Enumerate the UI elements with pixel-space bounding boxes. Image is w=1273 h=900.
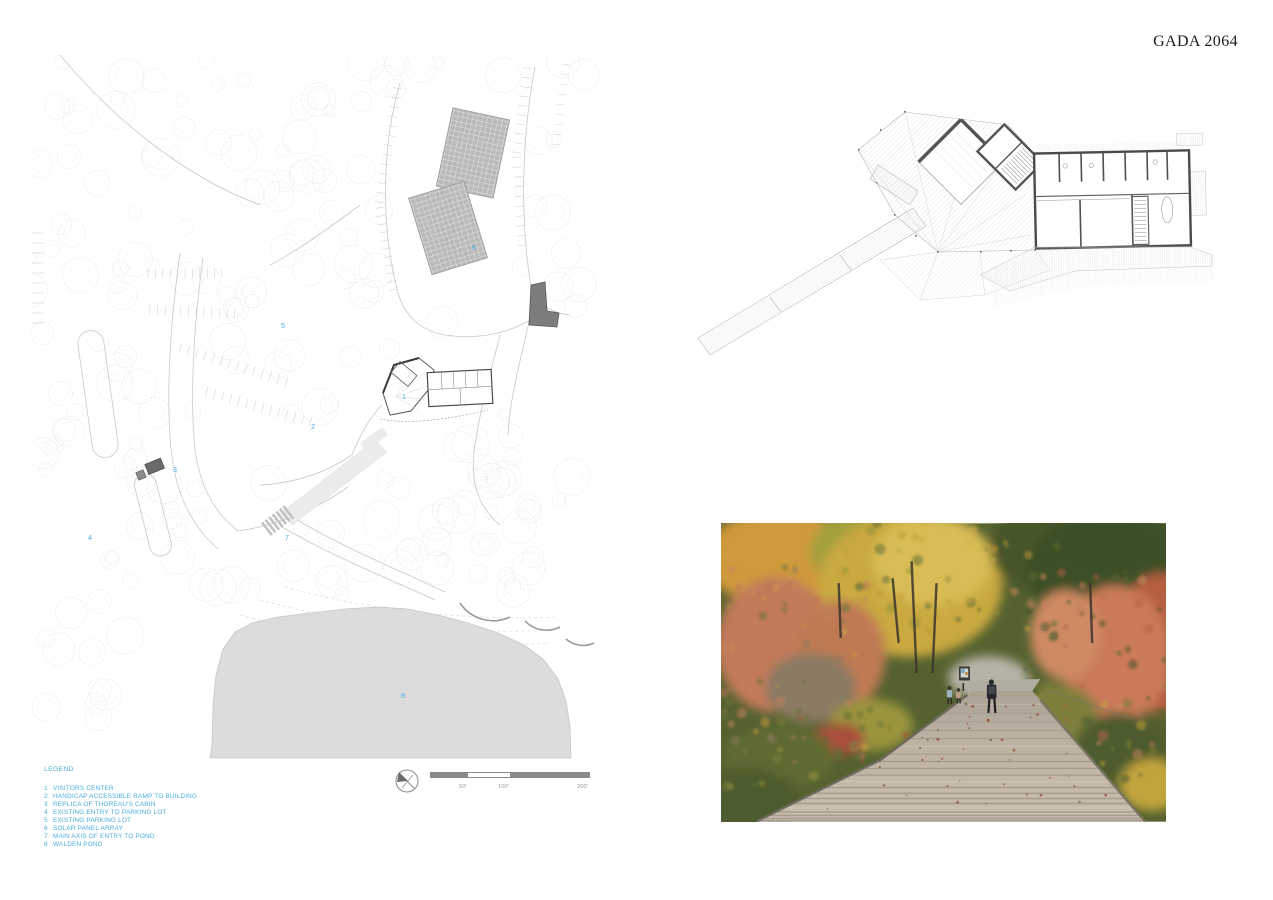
callout-1: 1 xyxy=(402,392,406,401)
callout-6: 6 xyxy=(472,243,476,252)
existing-building xyxy=(529,282,559,327)
legend-item: 2HANDICAP ACCESSIBLE RAMP TO BUILDING xyxy=(44,793,324,801)
floor-plan-drawing xyxy=(680,85,1215,365)
legend-item: 8WALDEN POND xyxy=(44,841,324,849)
page-title: GADA 2064 xyxy=(1153,33,1238,51)
legend-item: 4EXISTING ENTRY TO PARKING LOT xyxy=(44,809,324,817)
site-plan-drawing: 1 2 3 4 5 6 7 8 xyxy=(30,55,600,765)
north-arrow-icon xyxy=(394,768,420,794)
callout-8: 8 xyxy=(401,691,405,700)
callout-7: 7 xyxy=(285,533,289,542)
main-axis-path xyxy=(281,440,387,525)
solar-panel-array xyxy=(409,108,510,275)
boardwalk-photo xyxy=(721,523,1166,822)
callout-3: 3 xyxy=(173,465,177,474)
legend-item: 3REPLICA OF THOREAU'S CABIN xyxy=(44,801,324,809)
walden-pond xyxy=(210,607,571,758)
legend-item: 1VISITORS CENTER xyxy=(44,785,324,793)
legend: LEGEND 1VISITORS CENTER 2HANDICAP ACCESS… xyxy=(44,766,324,849)
scale-bar xyxy=(430,772,590,778)
legend-item: 7MAIN AXIS OF ENTRY TO POND xyxy=(44,833,324,841)
callout-4: 4 xyxy=(88,533,92,542)
legend-title: LEGEND xyxy=(44,766,324,773)
legend-item: 6SOLAR PANEL ARRAY xyxy=(44,825,324,833)
visitors-center-footprint xyxy=(380,358,493,421)
scale-label-200: 200' xyxy=(577,784,588,790)
callout-5: 5 xyxy=(281,321,285,330)
callout-2: 2 xyxy=(311,422,315,431)
legend-item: 5EXISTING PARKING LOT xyxy=(44,817,324,825)
scale-label-50: 50' xyxy=(459,784,467,790)
thoreau-cabin xyxy=(136,458,165,480)
presentation-board: GADA 2064 xyxy=(0,0,1273,900)
east-wing xyxy=(1034,133,1207,249)
scale-label-100: 100' xyxy=(498,784,509,790)
